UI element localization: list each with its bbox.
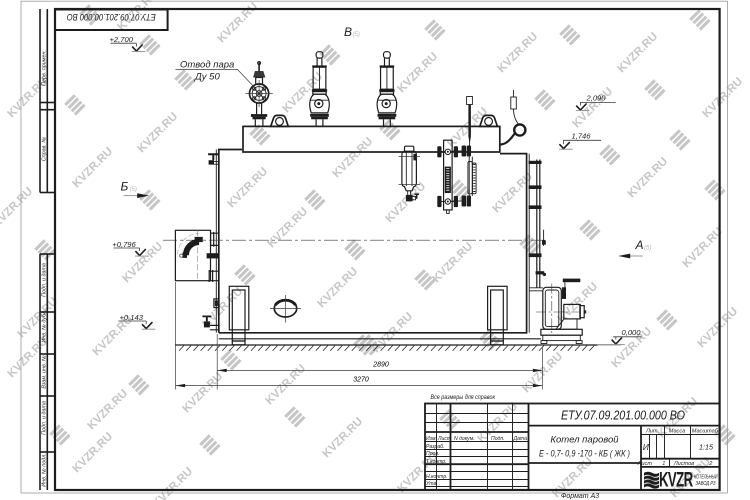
svg-text:Инв. № дубл.: Инв. № дубл. (42, 309, 48, 342)
svg-text:Подп. и дата: Подп. и дата (42, 401, 48, 435)
svg-text:(5): (5) (644, 245, 651, 251)
svg-text:А: А (635, 238, 644, 252)
svg-text:KVZR: KVZR (659, 469, 693, 492)
svg-text:Инв. № подл.: Инв. № подл. (42, 453, 48, 486)
svg-text:В: В (344, 25, 352, 39)
svg-text:Т.контр.: Т.контр. (426, 459, 447, 465)
svg-text:Котел паровой: Котел паровой (550, 435, 619, 446)
svg-text:Формат А3: Формат А3 (561, 493, 599, 500)
svg-text:2890: 2890 (372, 362, 389, 369)
svg-text:Подп. и дата: Подп. и дата (42, 263, 48, 297)
svg-text:Листов: Листов (673, 461, 694, 467)
svg-text:Взам. инв. №: Взам. инв. № (42, 355, 48, 389)
svg-text:И: И (643, 442, 650, 452)
svg-text:Отвод пара: Отвод пара (180, 59, 234, 70)
svg-text:Перв. примен.: Перв. примен. (42, 50, 48, 86)
svg-text:+0,796: +0,796 (112, 240, 136, 249)
svg-text:Разраб.: Разраб. (426, 444, 444, 450)
svg-text:1: 1 (662, 461, 665, 467)
svg-text:Подп.: Подп. (491, 436, 505, 442)
svg-text:+2,700: +2,700 (110, 35, 134, 44)
svg-text:ЗАВОД РЗ: ЗАВОД РЗ (696, 481, 716, 487)
svg-text:+0,143: +0,143 (120, 313, 144, 322)
svg-text:Дата: Дата (513, 436, 528, 442)
svg-text:Ду 50: Ду 50 (194, 71, 220, 82)
svg-text:Б: Б (121, 180, 129, 194)
svg-text:1,746: 1,746 (572, 131, 592, 140)
svg-text:(5): (5) (353, 32, 360, 38)
svg-text:Пров.: Пров. (426, 451, 439, 457)
svg-text:Масса: Масса (669, 428, 686, 434)
svg-text:Е - 0,7- 0,9 -170 - КБ ( ЖК ): Е - 0,7- 0,9 -170 - КБ ( ЖК ) (539, 449, 630, 459)
svg-text:ЕТУ.07.09.201.00.000 ВО: ЕТУ.07.09.201.00.000 ВО (561, 408, 685, 423)
svg-text:Все размеры для справок: Все размеры для справок (431, 394, 496, 401)
svg-text:(5): (5) (130, 187, 137, 193)
svg-text:Справ. №: Справ. № (42, 137, 48, 162)
svg-text:N докум.: N докум. (454, 436, 475, 442)
svg-text:Лист: Лист (437, 436, 451, 442)
svg-text:2,090: 2,090 (586, 94, 607, 103)
svg-text:ЕТУ.07.09.201.00.000 ВО: ЕТУ.07.09.201.00.000 ВО (67, 12, 156, 22)
svg-text:Лит.: Лит. (645, 428, 659, 434)
svg-text:КОТЕЛЬНЫЙ: КОТЕЛЬНЫЙ (694, 473, 718, 481)
svg-text:Н.контр.: Н.контр. (426, 474, 448, 480)
svg-text:Изм.: Изм. (426, 436, 437, 442)
svg-text:Утв.: Утв. (426, 481, 438, 487)
svg-text:3270: 3270 (353, 377, 369, 384)
svg-text:1:15: 1:15 (699, 442, 714, 451)
svg-text:0,000: 0,000 (622, 328, 642, 337)
svg-text:Масштаб: Масштаб (692, 428, 719, 434)
svg-text:Лист: Лист (637, 461, 653, 467)
